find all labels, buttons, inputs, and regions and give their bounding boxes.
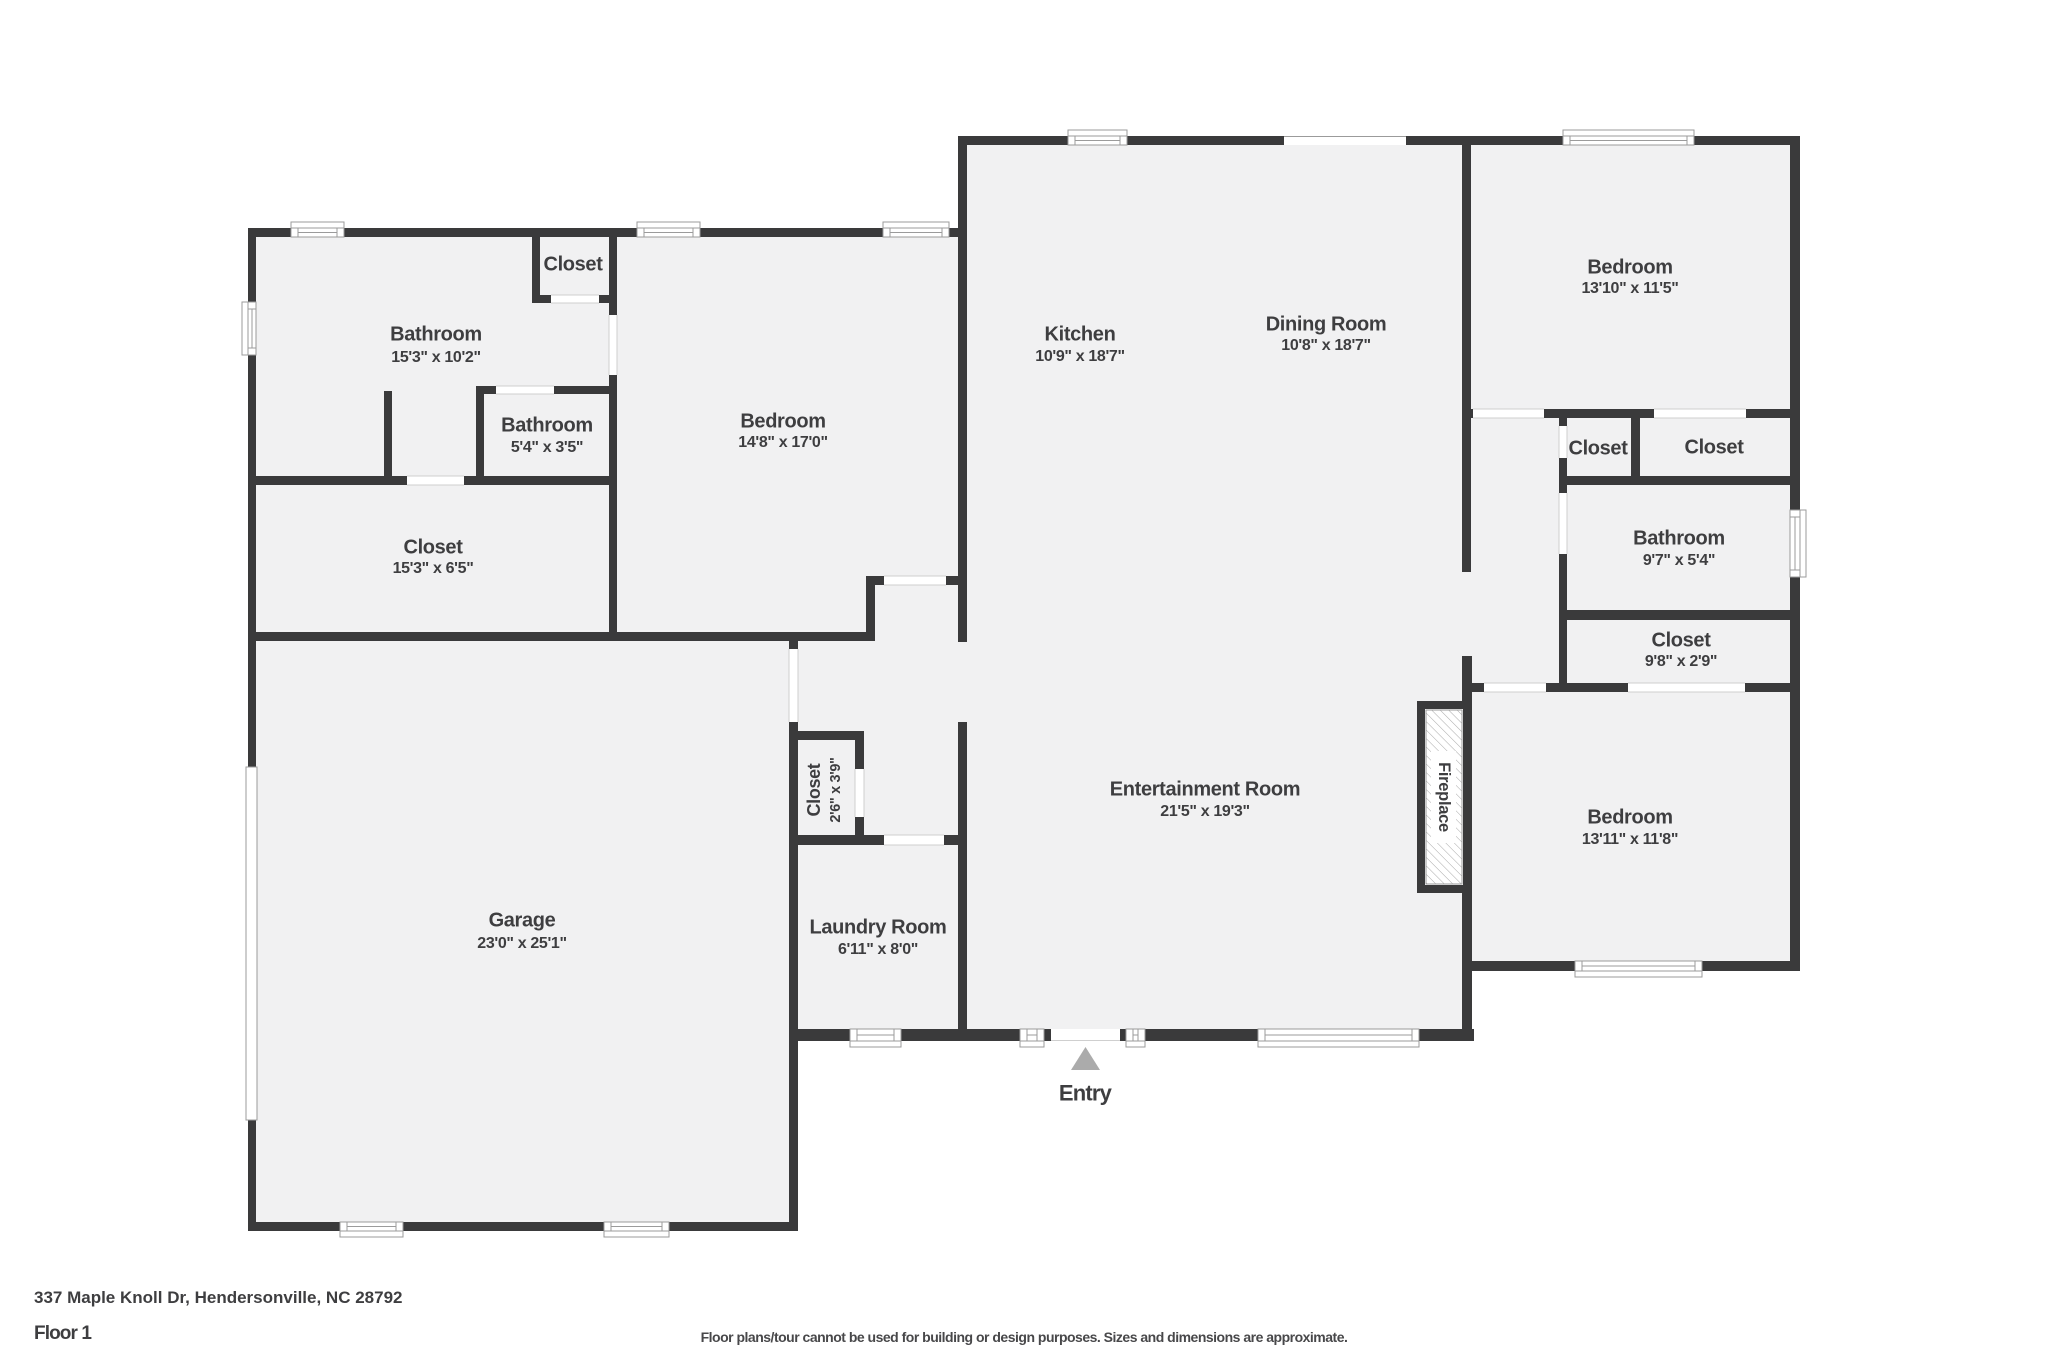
svg-text:Closet: Closet xyxy=(1684,436,1744,458)
svg-text:21'5" x 19'3": 21'5" x 19'3" xyxy=(1160,803,1249,820)
svg-text:10'9" x 18'7": 10'9" x 18'7" xyxy=(1035,348,1124,365)
svg-text:9'8" x 2'9": 9'8" x 2'9" xyxy=(1645,653,1717,670)
svg-text:2'6" x 3'9": 2'6" x 3'9" xyxy=(828,757,844,822)
svg-text:Bathroom: Bathroom xyxy=(1633,527,1725,549)
svg-text:Bedroom: Bedroom xyxy=(740,410,825,432)
svg-text:10'8" x 18'7": 10'8" x 18'7" xyxy=(1281,337,1370,354)
svg-text:Kitchen: Kitchen xyxy=(1045,323,1116,345)
svg-text:23'0" x 25'1": 23'0" x 25'1" xyxy=(477,935,566,952)
svg-text:Floor plans/tour cannot be use: Floor plans/tour cannot be used for buil… xyxy=(701,1329,1348,1345)
svg-text:Floor 1: Floor 1 xyxy=(34,1323,92,1344)
svg-text:Closet: Closet xyxy=(403,536,463,558)
svg-text:Garage: Garage xyxy=(489,909,556,931)
svg-text:Dining Room: Dining Room xyxy=(1266,313,1387,335)
svg-text:15'3" x 10'2": 15'3" x 10'2" xyxy=(391,349,480,366)
svg-text:Closet: Closet xyxy=(804,763,824,816)
svg-text:Closet: Closet xyxy=(1651,629,1711,651)
svg-text:13'11" x 11'8": 13'11" x 11'8" xyxy=(1582,831,1678,848)
svg-text:Laundry Room: Laundry Room xyxy=(810,916,947,938)
svg-text:337 Maple Knoll Dr, Hendersonv: 337 Maple Knoll Dr, Hendersonville, NC 2… xyxy=(34,1288,402,1307)
svg-text:13'10" x 11'5": 13'10" x 11'5" xyxy=(1581,280,1678,297)
svg-text:Closet: Closet xyxy=(1568,437,1628,459)
svg-text:9'7" x 5'4": 9'7" x 5'4" xyxy=(1643,552,1715,569)
svg-text:Entertainment Room: Entertainment Room xyxy=(1110,778,1300,800)
svg-text:Bedroom: Bedroom xyxy=(1587,256,1672,278)
svg-text:Closet: Closet xyxy=(543,253,603,275)
svg-text:Bathroom: Bathroom xyxy=(501,414,593,436)
svg-text:Fireplace: Fireplace xyxy=(1435,762,1453,832)
svg-text:Entry: Entry xyxy=(1059,1080,1113,1105)
svg-text:5'4" x 3'5": 5'4" x 3'5" xyxy=(511,439,583,456)
svg-text:6'11" x 8'0": 6'11" x 8'0" xyxy=(838,941,918,958)
svg-text:15'3" x 6'5": 15'3" x 6'5" xyxy=(393,560,474,577)
svg-text:14'8" x 17'0": 14'8" x 17'0" xyxy=(738,434,827,451)
svg-text:Bathroom: Bathroom xyxy=(390,323,482,345)
svg-text:Bedroom: Bedroom xyxy=(1587,806,1672,828)
